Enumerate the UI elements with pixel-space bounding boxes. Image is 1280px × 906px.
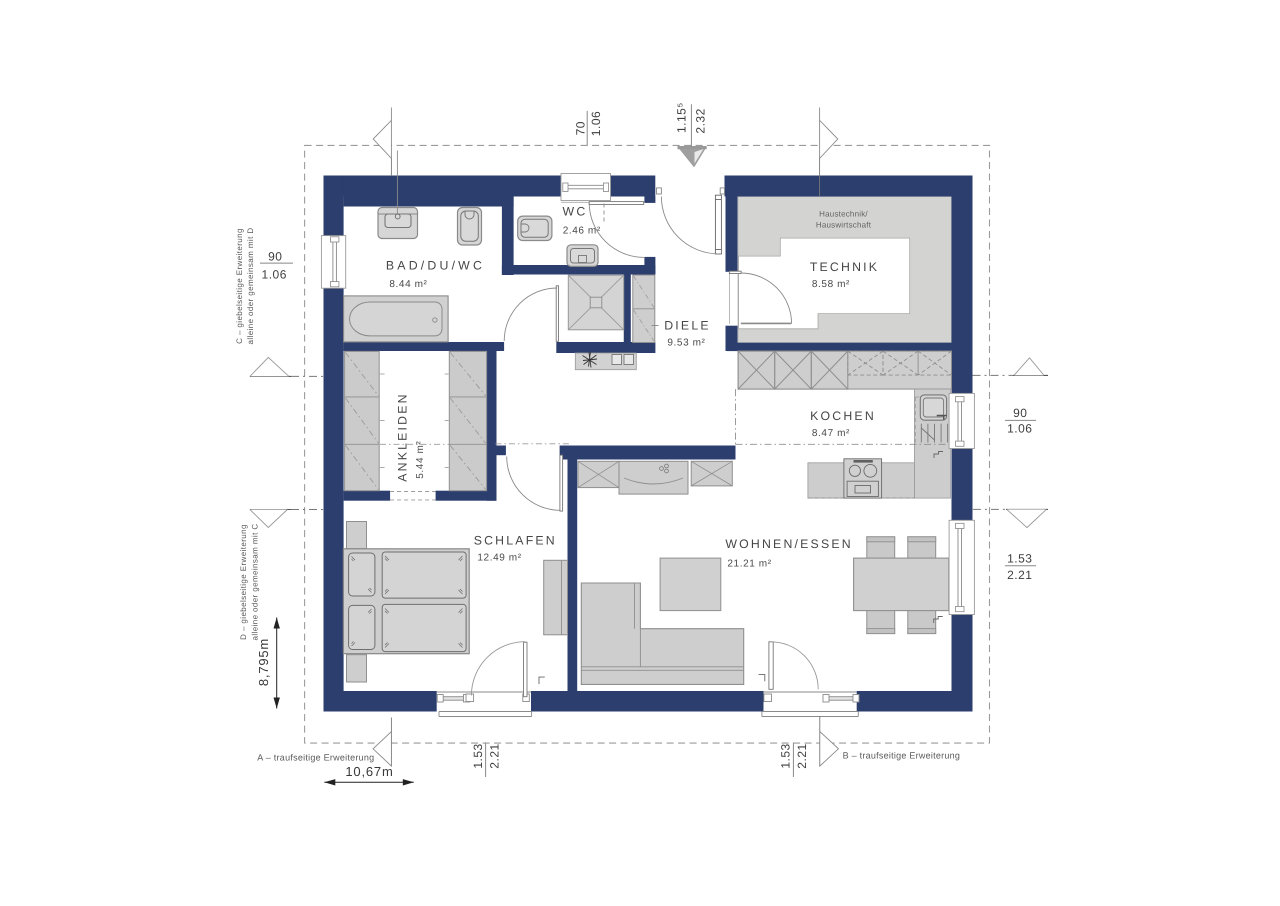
svg-text:8,795m: 8,795m	[256, 638, 271, 686]
svg-text:1.06: 1.06	[589, 111, 603, 136]
svg-text:WOHNEN/ESSEN: WOHNEN/ESSEN	[725, 537, 853, 551]
svg-text:1.53: 1.53	[779, 743, 793, 768]
svg-text:5.44 m²: 5.44 m²	[415, 441, 426, 479]
svg-text:1.53: 1.53	[1007, 551, 1032, 565]
svg-text:90: 90	[268, 249, 282, 263]
svg-text:alleine oder gemeinsam mit C: alleine oder gemeinsam mit C	[251, 523, 260, 640]
svg-text:TECHNIK: TECHNIK	[810, 260, 879, 274]
svg-text:2.32: 2.32	[694, 108, 708, 133]
svg-text:1.53: 1.53	[471, 743, 485, 768]
svg-text:SCHLAFEN: SCHLAFEN	[474, 533, 557, 547]
svg-text:12.49 m²: 12.49 m²	[477, 552, 521, 563]
svg-text:2.21: 2.21	[487, 743, 501, 768]
svg-text:90: 90	[1013, 406, 1027, 420]
svg-text:C – giebelseitige Erweiterung: C – giebelseitige Erweiterung	[235, 228, 244, 344]
svg-text:2.21: 2.21	[1007, 568, 1032, 582]
svg-text:KOCHEN: KOCHEN	[810, 409, 876, 423]
svg-text:DIELE: DIELE	[664, 319, 711, 333]
svg-text:9.53 m²: 9.53 m²	[667, 338, 705, 349]
svg-text:ANKLEIDEN: ANKLEIDEN	[396, 392, 410, 482]
svg-text:8.44 m²: 8.44 m²	[389, 279, 427, 290]
svg-text:1.15⁵: 1.15⁵	[675, 102, 689, 133]
svg-text:BAD/DU/WC: BAD/DU/WC	[386, 259, 485, 273]
svg-text:8.58 m²: 8.58 m²	[812, 279, 850, 290]
svg-text:1.06: 1.06	[1007, 422, 1032, 436]
svg-text:10,67m: 10,67m	[345, 764, 393, 779]
svg-text:1.06: 1.06	[262, 267, 287, 281]
svg-text:WC: WC	[563, 205, 588, 219]
svg-text:2.21: 2.21	[795, 743, 809, 768]
svg-text:70: 70	[574, 121, 588, 135]
svg-text:21.21 m²: 21.21 m²	[727, 558, 771, 569]
svg-text:Haustechnik/: Haustechnik/	[819, 209, 868, 218]
svg-text:D – giebelseitige Erweiterung: D – giebelseitige Erweiterung	[239, 524, 248, 640]
svg-text:8.47 m²: 8.47 m²	[812, 428, 850, 439]
svg-text:alleine oder gemeinsam mit D: alleine oder gemeinsam mit D	[246, 227, 255, 344]
svg-text:B – traufseitige Erweiterung: B – traufseitige Erweiterung	[843, 750, 961, 760]
svg-text:Hauswirtschaft: Hauswirtschaft	[816, 221, 872, 230]
svg-text:A – traufseitige Erweiterung: A – traufseitige Erweiterung	[257, 752, 374, 762]
